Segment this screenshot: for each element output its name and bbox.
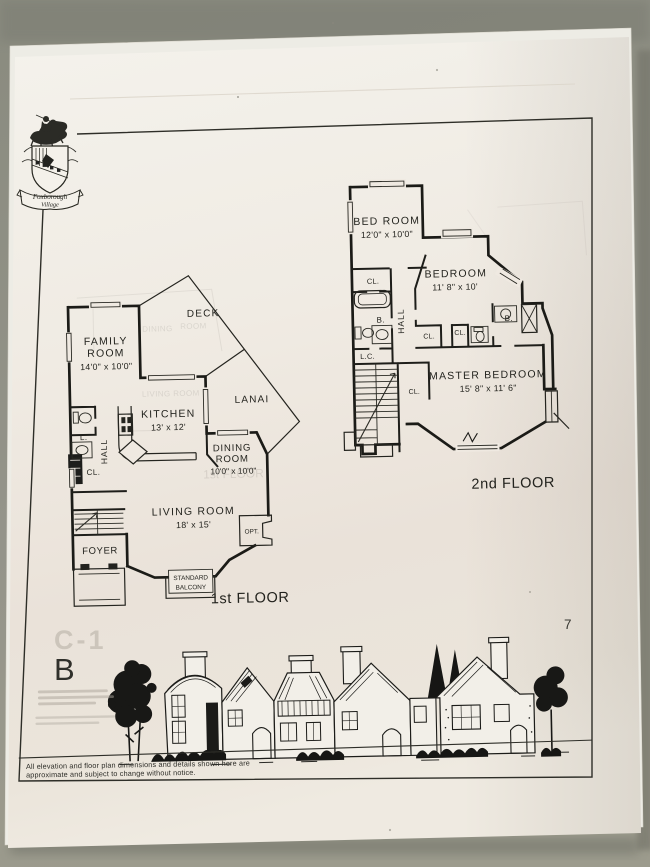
label-kitchen: KITCHEN [141,408,196,421]
floorplan-photo-canvas: Foxborough Village DINING ROOM LIVING RO… [0,0,650,867]
label-closet-bedroom: CL. [367,277,379,286]
label-deck: DECK [187,308,220,320]
label-hall-1f: HALL [99,439,110,464]
label-family-room-1: FAMILY [84,335,128,348]
page-number: 7 [564,617,572,632]
unit-letter: B [54,652,75,687]
label-master-bedroom: MASTER BEDROOM [429,368,547,382]
title-first-floor: 1st FLOOR [211,590,290,608]
crest-name-line2: Village [41,202,59,209]
ghost-plan-code: C-1 [54,625,107,655]
label-closet-master: CL. [408,389,420,396]
label-bath-left: B. [377,315,386,324]
crest-banner: Foxborough Village [17,190,83,209]
label-kitchen-dims: 13' x 12' [151,422,186,433]
label-bedroom-dims: 11' 8" x 10' [432,282,478,293]
label-bath-right: B. [504,314,513,323]
label-family-room-2: ROOM [87,347,125,360]
label-closet-hall-right: CL. [454,330,466,337]
label-balcony-1: STANDARD [173,574,208,582]
photo-of-floorplan-page: Foxborough Village DINING ROOM LIVING RO… [0,0,650,867]
label-dining-1: DINING [213,443,252,455]
label-living-room-dims: 18' x 15' [176,519,211,530]
label-opt: OPT. [245,528,260,535]
label-bedroom: BEDROOM [424,267,487,280]
ghost-text: DINING [142,324,173,334]
label-family-room-dims: 14'0" x 10'0" [80,361,132,372]
label-closet-1f: CL. [87,468,101,477]
title-second-floor: 2nd FLOOR [471,475,555,493]
label-dining-dims: 10'0" x 10'0" [210,465,256,476]
label-living-room: LIVING ROOM [152,505,235,519]
crest-name-line1: Foxborough [32,193,68,201]
label-bed-room-dims: 12'0" x 10'0" [361,229,413,240]
ghost-text: ROOM [180,321,207,331]
label-closet-hall-left: CL. [423,333,435,340]
label-foyer: FOYER [82,545,118,557]
ghost-text: LIVING ROOM [142,389,200,399]
label-linen-closet: L.C. [360,352,375,361]
label-lanai: LANAI [234,394,269,406]
label-master-dims: 15' 8" x 11' 6" [460,383,517,394]
label-lavatory: L. [80,433,88,442]
label-hall-2f: HALL [396,308,407,333]
label-dining-2: ROOM [216,454,249,466]
label-balcony-2: BALCONY [176,584,207,592]
label-bed-room: BED ROOM [353,215,420,228]
